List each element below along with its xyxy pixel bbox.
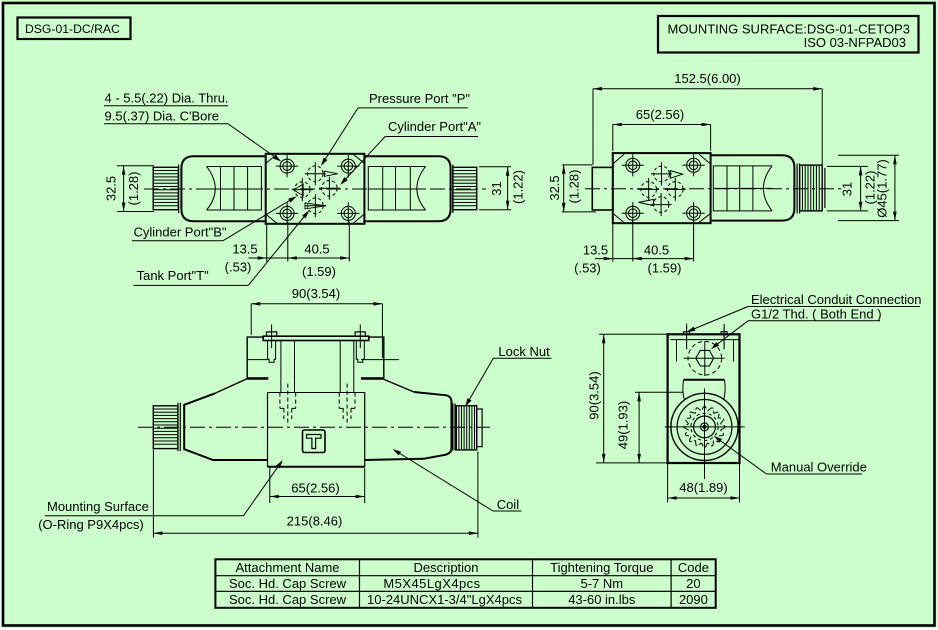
svg-text:40.5: 40.5 [304, 242, 329, 257]
svg-text:48(1.89): 48(1.89) [679, 480, 727, 495]
svg-text:(1.59): (1.59) [302, 264, 336, 279]
svg-text:32.5: 32.5 [547, 175, 562, 200]
svg-text:Ø45(1.77): Ø45(1.77) [875, 159, 890, 218]
svg-text:(1.28): (1.28) [126, 172, 141, 206]
svg-text:152.5(6.00): 152.5(6.00) [674, 71, 741, 86]
svg-text:(.53): (.53) [225, 260, 252, 275]
svg-text:Manual Override: Manual Override [771, 460, 867, 475]
svg-text:4 - 5.5(.22) Dia. Thru.: 4 - 5.5(.22) Dia. Thru. [105, 91, 229, 106]
svg-text:G1/2 Thd. ( Both End ): G1/2 Thd. ( Both End ) [751, 306, 882, 321]
svg-text:13.5: 13.5 [232, 242, 257, 257]
svg-text:2090: 2090 [679, 592, 708, 607]
svg-text:90(3.54): 90(3.54) [292, 286, 340, 301]
svg-text:10-24UNCX1-3/4"LgX4pcs: 10-24UNCX1-3/4"LgX4pcs [367, 592, 522, 607]
svg-text:31: 31 [840, 182, 855, 196]
svg-text:43-60 in.lbs: 43-60 in.lbs [568, 592, 636, 607]
svg-text:ISO 03-NFPAD03: ISO 03-NFPAD03 [804, 35, 906, 50]
svg-text:Mounting Surface: Mounting Surface [47, 499, 149, 514]
svg-text:Coil: Coil [497, 497, 520, 512]
svg-text:32.5: 32.5 [104, 176, 119, 201]
svg-text:9.5(.37) Dia. C'Bore: 9.5(.37) Dia. C'Bore [105, 109, 219, 124]
svg-text:5-7 Nm: 5-7 Nm [580, 576, 623, 591]
svg-text:65(2.56): 65(2.56) [291, 481, 339, 496]
svg-text:90(3.54): 90(3.54) [587, 371, 602, 419]
svg-text:(1.22): (1.22) [511, 170, 526, 204]
svg-text:Tank Port"T": Tank Port"T" [137, 268, 209, 283]
svg-text:(.53): (.53) [574, 261, 601, 276]
svg-text:(1.28): (1.28) [567, 170, 582, 204]
svg-text:13.5: 13.5 [583, 243, 608, 258]
svg-text:Code: Code [678, 560, 709, 575]
svg-text:DSG-01-DC/RAC: DSG-01-DC/RAC [25, 22, 120, 36]
svg-text:215(8.46): 215(8.46) [287, 514, 343, 529]
svg-text:(1.59): (1.59) [648, 261, 682, 276]
svg-text:20: 20 [686, 576, 700, 591]
svg-text:Pressure Port "P": Pressure Port "P" [369, 91, 470, 106]
svg-text:40.5: 40.5 [644, 243, 669, 258]
svg-text:Lock Nut: Lock Nut [498, 344, 550, 359]
svg-text:(O-Ring P9X4pcs): (O-Ring P9X4pcs) [38, 517, 143, 532]
svg-text:49(1.93): 49(1.93) [616, 401, 631, 449]
svg-text:Cylinder Port"A": Cylinder Port"A" [388, 119, 481, 134]
svg-text:Soc. Hd. Cap Screw: Soc. Hd. Cap Screw [229, 592, 347, 607]
svg-text:Cylinder Port"B": Cylinder Port"B" [134, 224, 227, 239]
svg-text:Tightening Torque: Tightening Torque [550, 560, 653, 575]
svg-text:31: 31 [489, 181, 504, 195]
svg-text:Description: Description [413, 560, 478, 575]
svg-text:Attachment Name: Attachment Name [235, 560, 339, 575]
svg-text:Soc. Hd. Cap Screw: Soc. Hd. Cap Screw [229, 576, 347, 591]
svg-text:Electrical Conduit Connection: Electrical Conduit Connection [751, 292, 922, 307]
svg-text:65(2.56): 65(2.56) [636, 107, 684, 122]
svg-text:M5X45LgX4pcs: M5X45LgX4pcs [383, 576, 480, 591]
